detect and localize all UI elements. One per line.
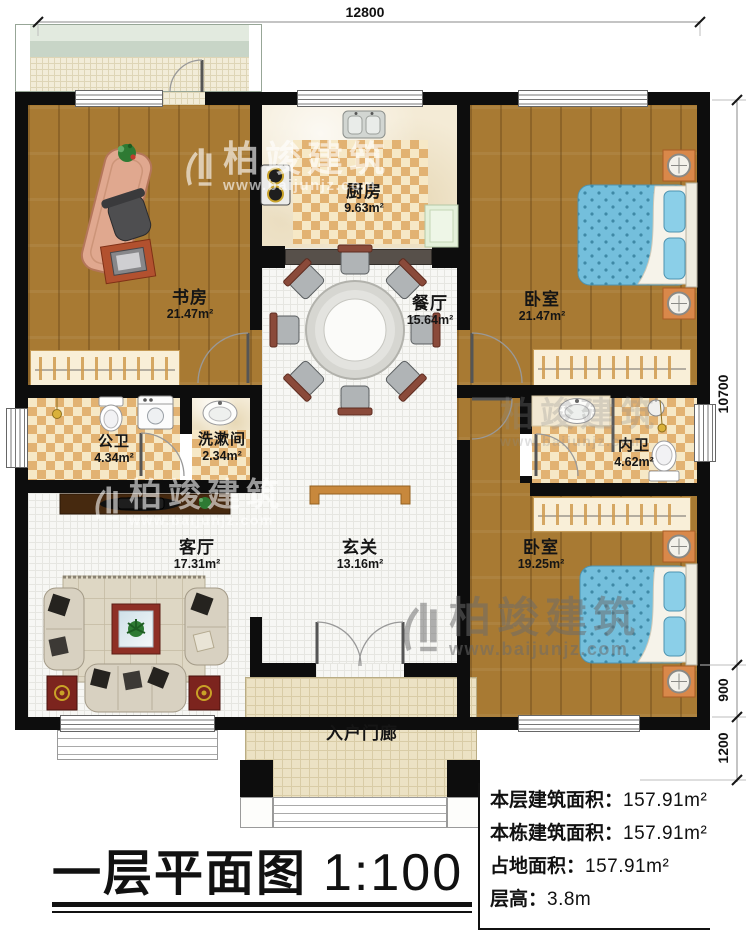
title-underline-thick (52, 902, 472, 907)
room-label-bedroom1: 卧室 21.47m² (519, 290, 566, 323)
terrace-door-gap (163, 92, 205, 105)
wall-entry-right (404, 663, 460, 677)
area-summary: 本层建筑面积： 157.91m² 本栋建筑面积： 157.91m² 占地面积： … (490, 785, 707, 917)
room-area: 9.63m² (344, 201, 384, 215)
summary-value: 3.8m (547, 889, 591, 911)
room-label-porch: 入户门廊 (326, 724, 398, 743)
porch-pillar-left (240, 760, 273, 797)
room-label-living: 客厅 17.31m² (174, 538, 221, 571)
room-area: 19.25m² (518, 557, 565, 571)
bath-inner-window (694, 404, 716, 462)
room-name: 客厅 (174, 538, 221, 557)
terrace-rail-outer (30, 25, 249, 42)
dim-right-upper: 900 (715, 658, 731, 722)
study-wardrobe (30, 350, 180, 387)
summary-row: 占地面积： 157.91m² (490, 851, 707, 884)
wall-entry-left-stub (250, 617, 262, 677)
summary-row: 本层建筑面积： 157.91m² (490, 785, 707, 818)
room-area: 17.31m² (174, 557, 221, 571)
wall-washroom-east (250, 385, 262, 480)
kitchen-window (297, 90, 423, 107)
summary-divider-bottom (478, 928, 710, 930)
room-label-foyer: 玄关 13.16m² (337, 538, 384, 571)
room-label-washroom: 洗漱间 2.34m² (198, 432, 246, 463)
room-area: 2.34m² (198, 449, 246, 463)
vestibule-floor (470, 398, 520, 483)
summary-divider-vertical (478, 783, 480, 930)
terrace-deck (30, 57, 249, 91)
drawing-title-text: 一层平面图 (52, 834, 307, 905)
bath-public-window (6, 408, 28, 468)
wall-bathinner-north (470, 385, 697, 398)
summary-label: 占地面积： (490, 851, 585, 878)
title-underline-thin (52, 911, 472, 913)
study-window (75, 90, 163, 107)
dim-right-lower: 1200 (715, 716, 731, 780)
room-label-bath-public: 公卫 4.34m² (94, 434, 134, 465)
bedroom1-floor (470, 105, 697, 385)
terrace (15, 24, 262, 92)
living-floor (28, 493, 250, 717)
dim-right-main: 10700 (715, 362, 731, 426)
summary-value: 157.91m² (585, 856, 669, 878)
drawing-title: 一层平面图 1:100 (52, 834, 463, 905)
room-name: 餐厅 (407, 294, 454, 313)
room-area: 4.34m² (94, 451, 134, 465)
room-label-dining: 餐厅 15.64m² (407, 294, 454, 327)
porch-step-left (240, 797, 273, 828)
wall-bathinner-west-lower (520, 476, 532, 483)
wall-bath-south (15, 480, 262, 493)
wall-kitchen-stub-right (432, 246, 457, 268)
room-label-bedroom2: 卧室 19.25m² (518, 538, 565, 571)
bedroom2-entry-patch (470, 483, 530, 496)
living-hall-opening (250, 493, 262, 617)
vestibule-door-threshold (457, 398, 470, 440)
room-area: 4.62m² (614, 455, 654, 469)
bedroom1-window (518, 90, 648, 107)
room-name: 厨房 (344, 182, 384, 201)
living-window-steps (57, 730, 218, 760)
room-name: 洗漱间 (198, 432, 246, 449)
bedroom1-wardrobe (533, 349, 691, 386)
bedroom1-door-threshold (457, 330, 470, 385)
room-name: 卧室 (518, 538, 565, 557)
porch-pillar-right (447, 760, 480, 797)
study-door-threshold (250, 330, 262, 385)
bedroom2-window (518, 715, 640, 732)
wall-corner-vestibule (457, 385, 470, 398)
room-name: 公卫 (94, 434, 134, 451)
wall-bath-north (15, 385, 262, 398)
wall-bath-divider (180, 398, 192, 434)
wall-bedroom1-west-upper (457, 105, 470, 330)
room-name: 内卫 (614, 438, 654, 455)
summary-row: 本栋建筑面积： 157.91m² (490, 818, 707, 851)
room-label-kitchen: 厨房 9.63m² (344, 182, 384, 215)
room-name: 书房 (167, 288, 214, 307)
wall-kitchen-stub-left (255, 246, 285, 268)
entry-door-threshold (316, 663, 404, 677)
kitchen-bar-counter (285, 249, 432, 265)
porch-steps (273, 797, 447, 828)
washroom-counter (192, 398, 250, 432)
summary-row: 层高： 3.8m (490, 884, 707, 917)
terrace-rail-inner (30, 41, 249, 58)
room-name: 入户门廊 (326, 724, 398, 743)
floor-plan-page: 书房 21.47m² 厨房 9.63m² 餐厅 15.64m² 卧室 21.47… (0, 0, 750, 932)
dim-top: 12800 (333, 4, 397, 20)
porch-step-right (447, 797, 480, 828)
room-area: 21.47m² (519, 309, 566, 323)
room-area: 15.64m² (407, 313, 454, 327)
study-floor (28, 105, 250, 385)
wall-bathinner-south (530, 483, 697, 496)
summary-label: 本层建筑面积： (490, 785, 623, 812)
summary-label: 本栋建筑面积： (490, 818, 623, 845)
summary-value: 157.91m² (623, 823, 707, 845)
room-area: 21.47m² (167, 307, 214, 321)
room-area: 13.16m² (337, 557, 384, 571)
drawing-scale: 1:100 (323, 843, 463, 903)
room-label-study: 书房 21.47m² (167, 288, 214, 321)
wall-study-east-upper (250, 105, 262, 330)
room-name: 卧室 (519, 290, 566, 309)
summary-label: 层高： (490, 884, 547, 911)
room-label-bath-inner: 内卫 4.62m² (614, 438, 654, 469)
bedroom2-wardrobe (533, 497, 691, 532)
wall-entry-left (262, 663, 316, 677)
living-window (60, 715, 215, 732)
room-name: 玄关 (337, 538, 384, 557)
wall-bathinner-west-upper (520, 398, 532, 434)
summary-value: 157.91m² (623, 790, 707, 812)
